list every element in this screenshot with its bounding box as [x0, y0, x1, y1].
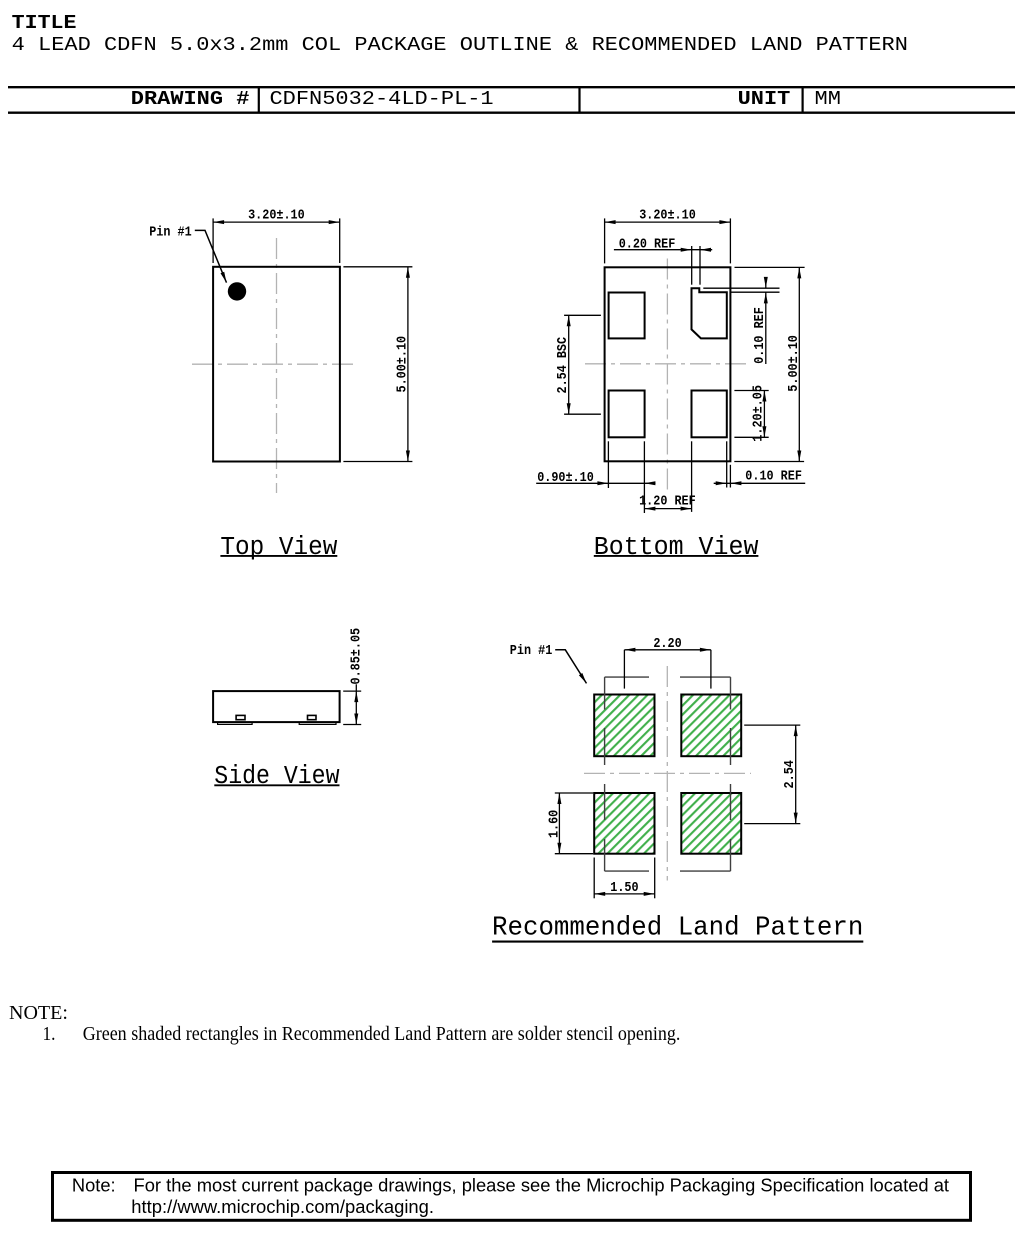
- svg-text:1.60: 1.60: [546, 810, 562, 838]
- svg-text:Recommended Land Pattern: Recommended Land Pattern: [492, 912, 863, 942]
- svg-text:http://www.microchip.com/packa: http://www.microchip.com/packaging.: [131, 1196, 434, 1217]
- svg-text:TITLE: TITLE: [12, 12, 77, 34]
- svg-text:For the most current package d: For the most current package drawings, p…: [134, 1175, 950, 1196]
- svg-text:DRAWING #: DRAWING #: [131, 88, 250, 110]
- svg-text:1.20 REF: 1.20 REF: [639, 494, 696, 510]
- svg-text:4 LEAD CDFN 5.0x3.2mm COL PACK: 4 LEAD CDFN 5.0x3.2mm COL PACKAGE OUTLIN…: [12, 34, 908, 56]
- svg-text:UNIT: UNIT: [738, 88, 791, 110]
- svg-text:1.20±.05: 1.20±.05: [751, 385, 767, 442]
- svg-text:0.20 REF: 0.20 REF: [619, 236, 676, 252]
- svg-text:CDFN5032-4LD-PL-1: CDFN5032-4LD-PL-1: [270, 88, 494, 110]
- svg-text:3.20±.10: 3.20±.10: [248, 207, 305, 223]
- svg-text:0.10 REF: 0.10 REF: [752, 307, 768, 364]
- svg-text:NOTE:: NOTE:: [9, 1002, 68, 1024]
- svg-text:5.00±.10: 5.00±.10: [394, 336, 410, 393]
- svg-text:2.54: 2.54: [782, 760, 798, 788]
- svg-text:Side View: Side View: [214, 762, 340, 791]
- svg-text:5.00±.10: 5.00±.10: [786, 335, 802, 392]
- svg-text:Note:: Note:: [72, 1175, 116, 1196]
- svg-text:3.20±.10: 3.20±.10: [639, 207, 696, 223]
- svg-text:Pin #1: Pin #1: [149, 224, 192, 240]
- svg-text:2.54 BSC: 2.54 BSC: [555, 336, 571, 393]
- svg-text:0.10 REF: 0.10 REF: [745, 469, 802, 485]
- svg-text:0.85±.05: 0.85±.05: [349, 628, 365, 685]
- svg-text:MM: MM: [815, 88, 841, 110]
- svg-text:2.20: 2.20: [653, 636, 681, 652]
- svg-text:Green shaded rectangles in Rec: Green shaded rectangles in Recommended L…: [83, 1023, 681, 1045]
- svg-text:Top View: Top View: [220, 533, 338, 562]
- svg-text:1.: 1.: [43, 1023, 56, 1045]
- svg-text:Bottom View: Bottom View: [594, 533, 759, 562]
- svg-text:Pin #1: Pin #1: [510, 643, 553, 659]
- svg-text:0.90±.10: 0.90±.10: [537, 470, 594, 486]
- svg-text:1.50: 1.50: [610, 880, 638, 896]
